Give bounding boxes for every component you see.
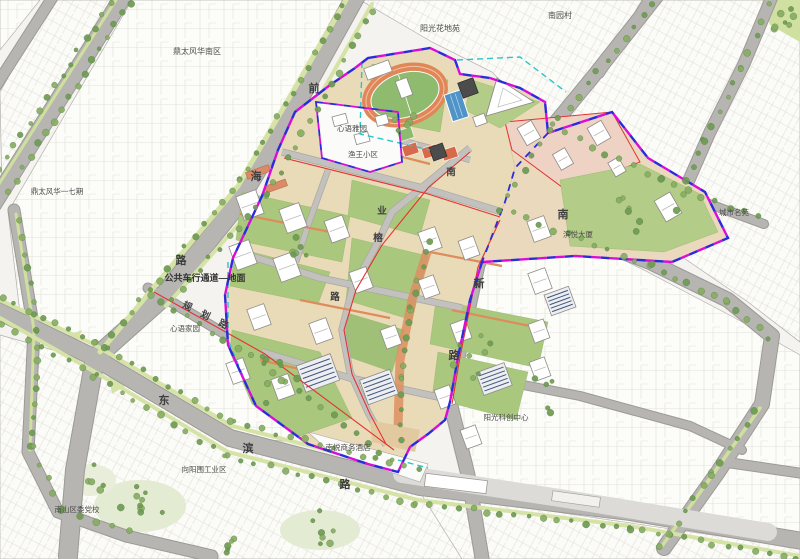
place-sunshine-tech-center: 阳光科创中心 bbox=[484, 412, 529, 422]
nanxin-road-char-0: 南 bbox=[558, 207, 569, 221]
qianhai-road-char-1: 海 bbox=[251, 169, 262, 183]
place-xiangyangwei-industrial: 向阳围工业区 bbox=[182, 464, 227, 474]
place-yuwang-estate: 渔王小区 bbox=[348, 149, 378, 159]
qianhai-road-char-2: 路 bbox=[176, 253, 188, 267]
internal-road-char-0: 南 bbox=[446, 166, 456, 178]
dongbin-road-char-0: 东 bbox=[159, 393, 170, 407]
place-nanyuan-village: 南园村 bbox=[548, 10, 572, 20]
place-binyue-tower: 滨悦大厦 bbox=[563, 229, 593, 239]
master-plan-map: 前 海 路 规 划 路 东 滨 路 南 新 路 南 业 榕 路 鼎太风华南区 鼎… bbox=[0, 0, 800, 559]
internal-road-char-3: 路 bbox=[330, 291, 340, 303]
place-nanshan-party-school: 南山区委党校 bbox=[55, 504, 100, 514]
plan-canvas: 前 海 路 规 划 路 东 滨 路 南 新 路 南 业 榕 路 鼎太风华南区 鼎… bbox=[0, 0, 800, 559]
nanxin-road-char-1: 新 bbox=[474, 276, 485, 290]
internal-road-char-2: 榕 bbox=[373, 232, 383, 244]
place-nanyue-hotel: 南悦商务酒店 bbox=[326, 442, 371, 452]
label-public-vehicle-passage: 公共车行通道—地面 bbox=[164, 272, 245, 283]
place-dingtai-phase7: 鼎太风华一七期 bbox=[31, 186, 84, 196]
place-xinyu-yayuan: 心语雅园 bbox=[337, 123, 367, 133]
dongbin-road-char-2: 路 bbox=[340, 477, 352, 491]
place-dingtai-south: 鼎太风华南区 bbox=[173, 46, 221, 56]
place-yangguang-huadiyuan: 阳光花地苑 bbox=[420, 23, 460, 33]
qianhai-road-char-0: 前 bbox=[309, 81, 320, 95]
nanxin-road-char-2: 路 bbox=[449, 348, 461, 362]
place-xinyu-jiayuan: 心语家园 bbox=[170, 323, 200, 333]
dongbin-road-char-1: 滨 bbox=[243, 441, 254, 455]
place-chengshi-mingyuan: 城市名苑 bbox=[719, 207, 749, 217]
internal-road-char-1: 业 bbox=[377, 205, 387, 217]
